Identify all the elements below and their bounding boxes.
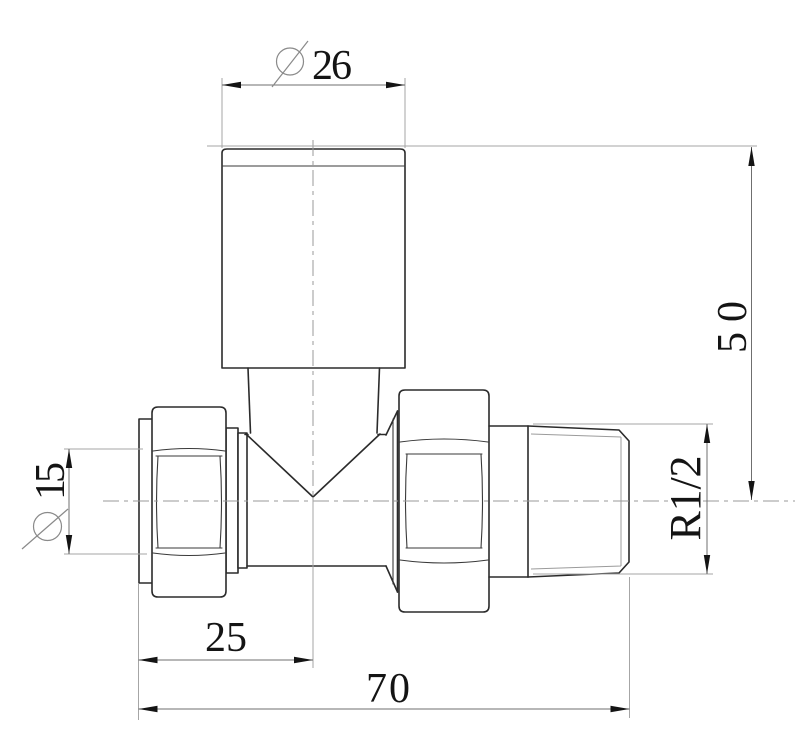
arrowhead-right-icon	[294, 657, 313, 663]
compression-nut	[152, 407, 226, 597]
compression-nut-outline	[152, 407, 226, 597]
diameter-symbol-icon	[22, 509, 68, 549]
label-cap-diameter: 26	[312, 43, 352, 89]
arrowhead-down-icon	[66, 535, 72, 554]
arrowhead-left-icon	[139, 657, 158, 663]
arrowhead-right-icon	[386, 82, 405, 88]
arrowhead-down-icon	[748, 481, 754, 500]
drawing-sheet: 26 50 R1/2 15 25 70	[0, 0, 795, 752]
arrowhead-down-icon	[704, 555, 710, 574]
label-thread-size: R1/2	[661, 456, 710, 541]
diameter-symbol-icon	[272, 41, 308, 87]
dimension-labels: 26 50 R1/2 15 25 70	[22, 41, 756, 712]
label-inlet-to-center: 25	[205, 615, 247, 661]
arrowhead-up-icon	[704, 424, 710, 443]
label-overall-height: 50	[710, 301, 756, 353]
valve-neck-right-edge	[377, 368, 380, 433]
valve-neck-left-edge	[248, 368, 251, 433]
label-pipe-diameter: 15	[28, 462, 74, 500]
arrowhead-up-icon	[748, 147, 754, 166]
valve-part	[139, 149, 629, 612]
arrowhead-left-icon	[139, 706, 158, 712]
arrowhead-right-icon	[611, 706, 630, 712]
arrowhead-left-icon	[222, 82, 241, 88]
label-overall-length: 70	[366, 666, 410, 712]
valve-technical-drawing: 26 50 R1/2 15 25 70	[0, 0, 795, 752]
